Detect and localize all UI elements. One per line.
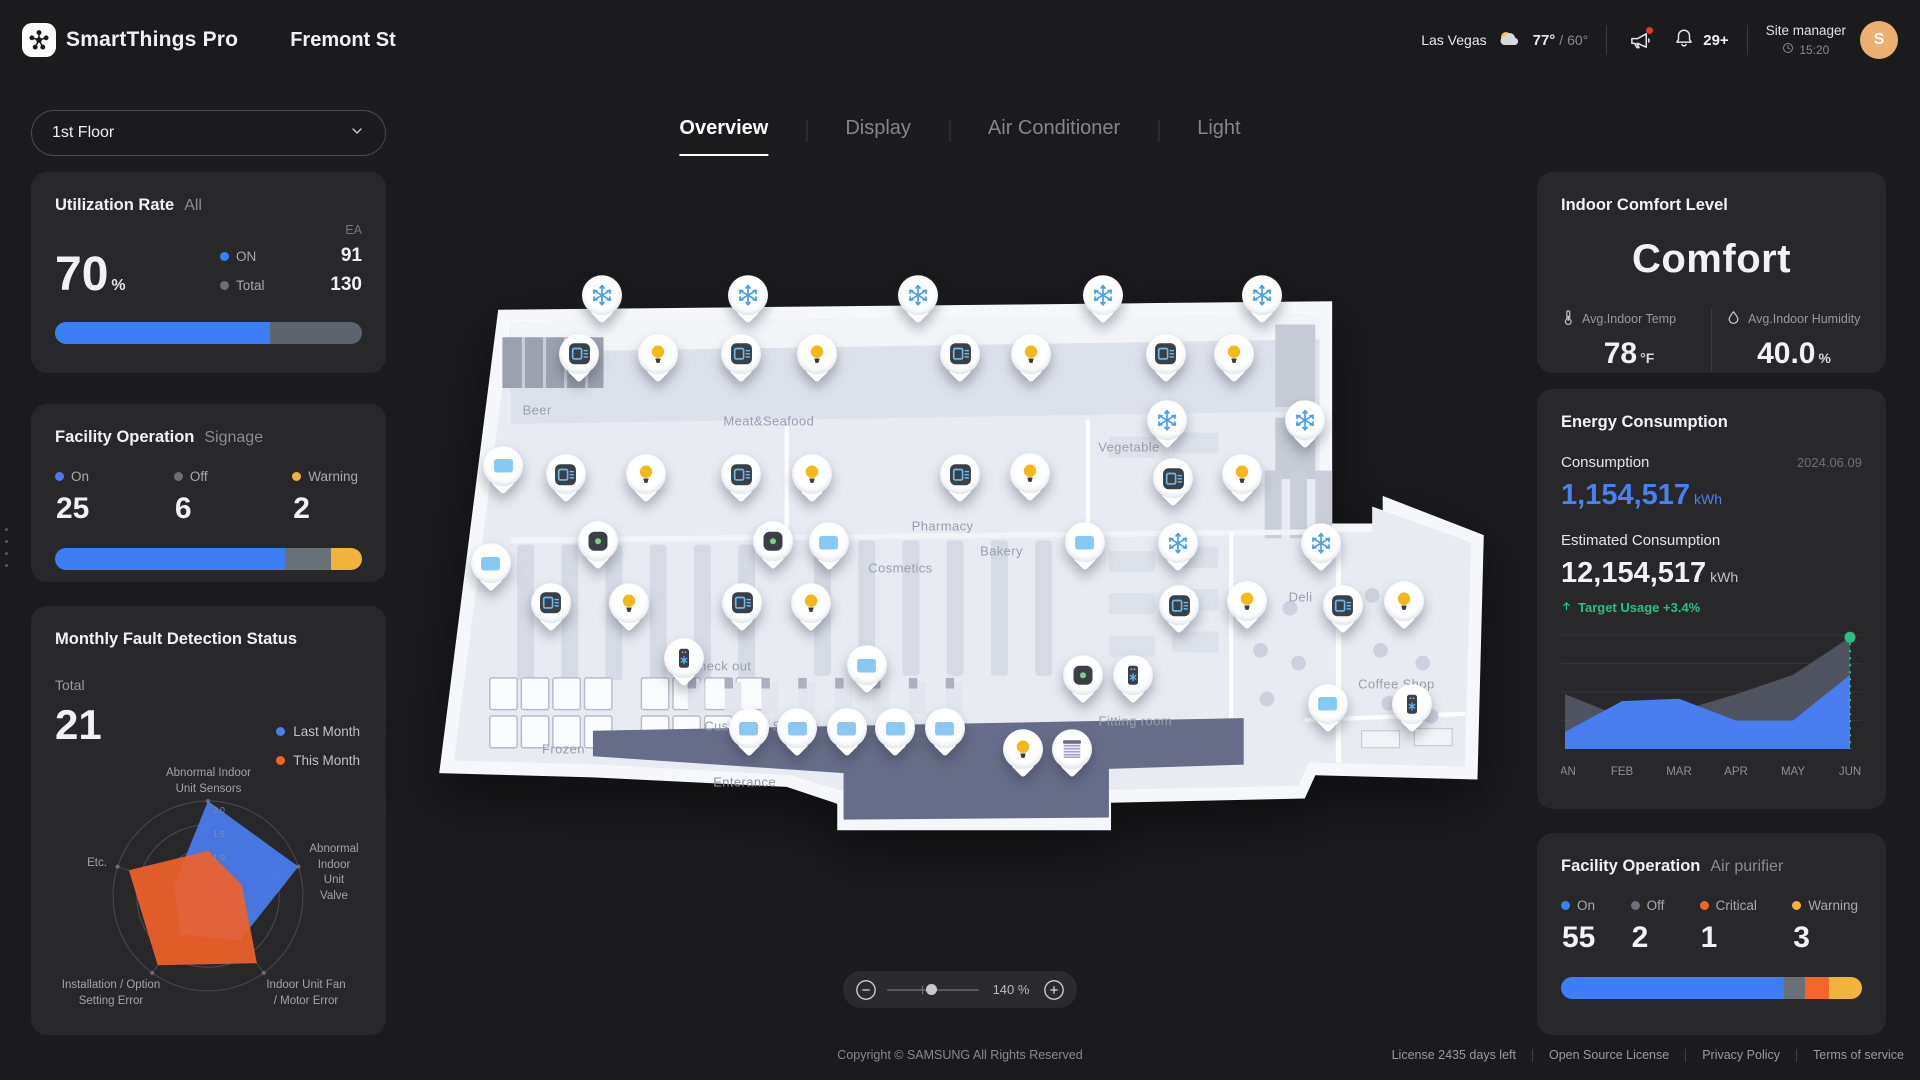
legend-dot [174,472,183,481]
utilization-rate-card: Utilization Rate All 70% EA ON91Total130 [31,172,386,373]
bulb-icon [635,464,657,486]
tab-display[interactable]: Display [845,117,911,156]
sensor-pin[interactable] [577,521,619,573]
svg-text:FEB: FEB [1611,766,1634,778]
footer-divider [1796,1049,1797,1062]
snowflake-icon [1166,532,1190,556]
avg-indoor-temp-metric: Avg.Indoor Temp 78°F [1561,310,1697,371]
region-label-fitting-room: Fitting room [1099,713,1172,728]
purifier-pin[interactable] [1112,656,1154,708]
bar-segment-off [285,548,331,570]
bulb-icon [1012,738,1034,760]
card-title: Facility Operation [1561,857,1700,876]
snowflake-icon [590,283,614,307]
bar-segment-critical [1805,977,1829,999]
ac-pin[interactable] [530,583,572,635]
temp-low: / 60° [1559,32,1588,48]
legend-dot [1631,901,1640,910]
tab-light[interactable]: Light [1197,117,1240,156]
svg-text:2.0: 2.0 [213,805,225,815]
display-icon [884,717,907,740]
light-pin[interactable] [1383,581,1425,633]
legend-item-total: Total130 [220,274,362,296]
display-icon [492,455,515,478]
display-pin[interactable] [874,708,916,760]
legend-dot [292,472,301,481]
estimated-label: Estimated Consumption [1561,532,1862,549]
utilization-percent: 70% [55,247,126,302]
bell-icon [1673,27,1695,54]
clock-icon [1782,42,1794,57]
consumption-date: 2024.06.09 [1797,455,1862,470]
display-icon [479,552,502,575]
air-purifier-icon [1401,693,1423,715]
ac-pin[interactable] [558,334,600,386]
ac-unit-icon [949,343,972,366]
zoom-level-value: 140 % [989,982,1033,997]
sensor-pin[interactable] [1062,656,1104,708]
bar-segment-off [1784,977,1805,999]
svg-text:APR: APR [1724,766,1748,778]
purifier-pin[interactable] [663,638,705,690]
footer-divider [1685,1049,1686,1062]
card-scope-filter[interactable]: Signage [204,429,263,447]
copyright-text: Copyright © SAMSUNG All Rights Reserved [837,1048,1082,1062]
ac-unit-icon [730,343,753,366]
profile-menu[interactable]: Site manager 15:20 S [1766,21,1898,59]
brand-name: SmartThings Pro [66,28,238,52]
zoom-slider[interactable] [887,983,979,997]
snow-pin[interactable] [1146,400,1188,452]
monthly-fault-detection-card: Monthly Fault Detection Status Total 21 … [31,606,386,1035]
stat-warning: Warning2 [292,469,358,526]
header-divider [1747,25,1748,55]
ac-unit-icon [1154,343,1177,366]
profile-role: Site manager [1766,23,1846,38]
temp-high: 77° [1533,32,1556,49]
avatar[interactable]: S [1860,21,1898,59]
thermometer-icon [1561,310,1575,329]
avg-indoor-humidity-metric: Avg.Indoor Humidity 40.0% [1726,310,1862,371]
stat-warning: Warning3 [1792,898,1858,955]
light-pin[interactable] [637,334,679,386]
region-label-enterance: Enterance [713,775,776,790]
arrow-up-icon [1561,600,1572,615]
light-pin[interactable] [625,455,667,507]
light-pin[interactable] [1221,455,1263,507]
display-icon [1073,531,1096,554]
blind-icon [1061,738,1083,760]
air-purifier-icon [673,647,695,669]
radar-axis-3: Installation / Option Setting Error [62,978,160,1009]
bulb-icon [647,343,669,365]
zoom-in-icon[interactable] [1043,979,1065,1001]
snow-pin[interactable] [897,275,939,327]
snow-pin[interactable] [1082,275,1124,327]
ac-unit-icon [949,463,972,486]
footer-link-privacy-policy[interactable]: Privacy Policy [1702,1048,1780,1062]
light-pin[interactable] [1009,454,1051,506]
ac-unit-icon [1162,467,1185,490]
svg-text:1.5: 1.5 [213,829,225,839]
svg-text:MAR: MAR [1666,766,1692,778]
stat-critical: Critical1 [1700,898,1757,955]
energy-area-chart: JANFEBMARAPRMAYJUN [1561,631,1862,786]
legend-dot [1561,901,1570,910]
display-pin[interactable] [1307,684,1349,736]
ac-pin[interactable] [939,334,981,386]
ac-pin[interactable] [1152,459,1194,511]
fault-radar-chart: 1.01.52.0Abnormal Indoor Unit SensorsAbn… [31,606,386,1035]
stat-off: Off6 [174,469,208,526]
bulb-icon [1393,590,1415,612]
profile-time: 15:20 [1799,43,1829,57]
ac-unit-icon [539,592,562,615]
metric-divider [1711,308,1712,372]
notification-badge: 29+ [1703,32,1728,49]
display-pin[interactable] [470,544,512,596]
region-label-frozen: Frozen [542,742,585,757]
display-pin[interactable] [924,708,966,760]
region-label-cosmetics: Cosmetics [868,561,932,576]
bulb-icon [1223,343,1245,365]
notifications-button[interactable]: 29+ [1673,27,1728,54]
bar-segment-on [1561,977,1784,999]
floor-selector-value: 1st Floor [52,124,114,142]
ac-pin[interactable] [545,455,587,507]
display-pin[interactable] [1064,523,1106,575]
light-pin[interactable] [1213,334,1255,386]
snowflake-icon [906,283,930,307]
tab-air-conditioner[interactable]: Air Conditioner [988,117,1120,156]
utilization-progress-bar [55,322,362,344]
bulb-icon [1019,463,1041,485]
legend-dot [220,281,229,290]
card-title: Utilization Rate [55,196,174,215]
snowflake-icon [1091,283,1115,307]
indoor-comfort-card: Indoor Comfort Level Comfort Avg.Indoor … [1537,172,1886,373]
bulb-icon [801,464,823,486]
region-label-pharmacy: Pharmacy [912,518,974,533]
ac-pin[interactable] [1158,585,1200,637]
target-usage: Target Usage +3.4% [1561,600,1862,615]
air-purifier-status-bar [1561,977,1862,999]
light-pin[interactable] [790,583,832,635]
svg-text:MAY: MAY [1781,766,1805,778]
partly-cloudy-icon [1497,29,1523,52]
weather-widget: Las Vegas 77° / 60° [1421,29,1588,52]
estimated-value: 12,154,517kWh [1561,557,1862,590]
region-label-deli: Deli [1289,589,1313,604]
stat-on: On25 [55,469,89,526]
megaphone-icon[interactable] [1625,25,1655,55]
zoom-out-icon[interactable] [855,979,877,1001]
blind-pin[interactable] [1051,729,1093,781]
bulb-icon [806,343,828,365]
svg-text:1.0: 1.0 [213,853,225,863]
main-tabs: OverviewDisplayAir ConditionerLight [679,117,1240,156]
display-icon [835,717,858,740]
comfort-level-value: Comfort [1561,237,1862,282]
sensor-icon [587,530,609,552]
sensor-icon [1072,665,1094,687]
snow-pin[interactable] [1300,524,1342,576]
snow-pin[interactable] [581,275,623,327]
facility-operation-air-purifier-card: Facility Operation Air purifier On55Off2… [1537,833,1886,1035]
bar-segment-on [55,548,285,570]
svg-text:JAN: JAN [1561,766,1576,778]
card-title: Facility Operation [55,428,194,447]
snowflake-icon [1293,408,1317,432]
alert-dot [1646,27,1653,34]
smartthings-logo-icon [22,23,56,57]
display-pin[interactable] [776,708,818,760]
region-label-beer: Beer [523,402,552,417]
ac-pin[interactable] [939,455,981,507]
snow-pin[interactable] [1284,400,1326,452]
snow-pin[interactable] [1241,275,1283,327]
ac-pin[interactable] [721,583,763,635]
tab-divider [806,120,807,142]
tab-divider [949,120,950,142]
map-zoom-control: 140 % [843,971,1077,1008]
bulb-icon [1020,343,1042,365]
card-title: Indoor Comfort Level [1561,196,1728,215]
ac-unit-icon [730,463,753,486]
display-pin[interactable] [808,523,850,575]
zoom-slider-handle[interactable] [926,984,937,995]
display-icon [933,717,956,740]
display-pin[interactable] [482,446,524,498]
top-bar: SmartThings Pro Fremont St Las Vegas 77°… [0,0,1920,80]
legend-dot [1792,901,1801,910]
display-icon [855,654,878,677]
display-icon [737,717,760,740]
light-pin[interactable] [1226,581,1268,633]
page-title: Fremont St [290,29,396,52]
snowflake-icon [1309,532,1333,556]
legend-dot [1700,901,1709,910]
chevron-down-icon [349,123,365,144]
svg-text:JUN: JUN [1839,766,1861,778]
display-pin[interactable] [728,708,770,760]
bulb-icon [800,592,822,614]
display-icon [1316,692,1339,715]
region-label-meat-seafood: Meat&Seafood [723,413,814,428]
snow-pin[interactable] [727,275,769,327]
ac-pin[interactable] [1145,334,1187,386]
bulb-icon [618,592,640,614]
ac-unit-icon [1331,594,1354,617]
unit-label: EA [220,223,362,237]
panel-drag-handle[interactable] [5,528,8,567]
legend-dot [220,252,229,261]
footer-divider [1532,1049,1533,1062]
stat-on: On55 [1561,898,1595,955]
card-title: Energy Consumption [1561,413,1728,432]
floor-map[interactable]: BeerMeat&SeafoodVegetableBakeryPharmacyC… [435,278,1488,844]
ac-unit-icon [731,592,754,615]
energy-consumption-card: Energy Consumption Consumption 2024.06.0… [1537,389,1886,809]
radar-axis-1: Abnormal Indoor Unit Valve [308,842,360,904]
energy-chart-svg: JANFEBMARAPRMAYJUN [1561,631,1862,781]
sensor-icon [762,530,784,552]
card-scope-filter[interactable]: Air purifier [1710,858,1783,876]
legend-dot [55,472,64,481]
bar-segment-warning [1829,977,1862,999]
tab-overview[interactable]: Overview [679,117,768,156]
radar-axis-2: Indoor Unit Fan / Motor Error [266,978,345,1009]
air-purifier-icon [1122,665,1144,687]
weather-city: Las Vegas [1421,32,1486,48]
ac-unit-icon [1168,594,1191,617]
snowflake-icon [1250,283,1274,307]
radar-axis-0: Abnormal Indoor Unit Sensors [166,766,251,797]
ac-unit-icon [568,343,591,366]
footer-links: License 2435 days leftOpen Source Licens… [1392,1048,1904,1062]
light-pin[interactable] [608,583,650,635]
floor-selector[interactable]: 1st Floor [31,110,386,156]
signage-status-bar [55,548,362,570]
humidity-icon [1726,310,1741,329]
light-pin[interactable] [1010,334,1052,386]
footer-link-open-source-license[interactable]: Open Source License [1549,1048,1669,1062]
stat-off: Off2 [1631,898,1665,955]
light-pin[interactable] [796,334,838,386]
consumption-value: 1,154,517kWh [1561,479,1862,512]
bulb-icon [1236,590,1258,612]
ac-pin[interactable] [1322,585,1364,637]
footer-link-terms-of-service[interactable]: Terms of service [1813,1048,1904,1062]
footer-link-license-2435-days-left[interactable]: License 2435 days left [1392,1048,1516,1062]
bulb-icon [1231,464,1253,486]
display-icon [817,531,840,554]
display-pin[interactable] [826,708,868,760]
snow-pin[interactable] [1157,524,1199,576]
header-divider [1606,25,1607,55]
facility-operation-signage-card: Facility Operation Signage On25Off6Warni… [31,404,386,582]
purifier-pin[interactable] [1391,684,1433,736]
legend-item-on: ON91 [220,245,362,267]
tab-divider [1158,120,1159,142]
light-pin[interactable] [791,455,833,507]
snowflake-icon [1155,408,1179,432]
display-icon [786,717,809,740]
display-pin[interactable] [846,645,888,697]
bar-segment-warning [331,548,362,570]
card-scope-filter[interactable]: All [184,197,202,215]
light-pin[interactable] [1002,729,1044,781]
sensor-pin[interactable] [752,521,794,573]
ac-pin[interactable] [720,334,762,386]
region-label-bakery: Bakery [980,544,1023,559]
ac-unit-icon [554,463,577,486]
consumption-label: Consumption [1561,454,1649,471]
snowflake-icon [736,283,760,307]
radar-axis-4: Etc. [87,856,107,872]
ac-pin[interactable] [720,455,762,507]
